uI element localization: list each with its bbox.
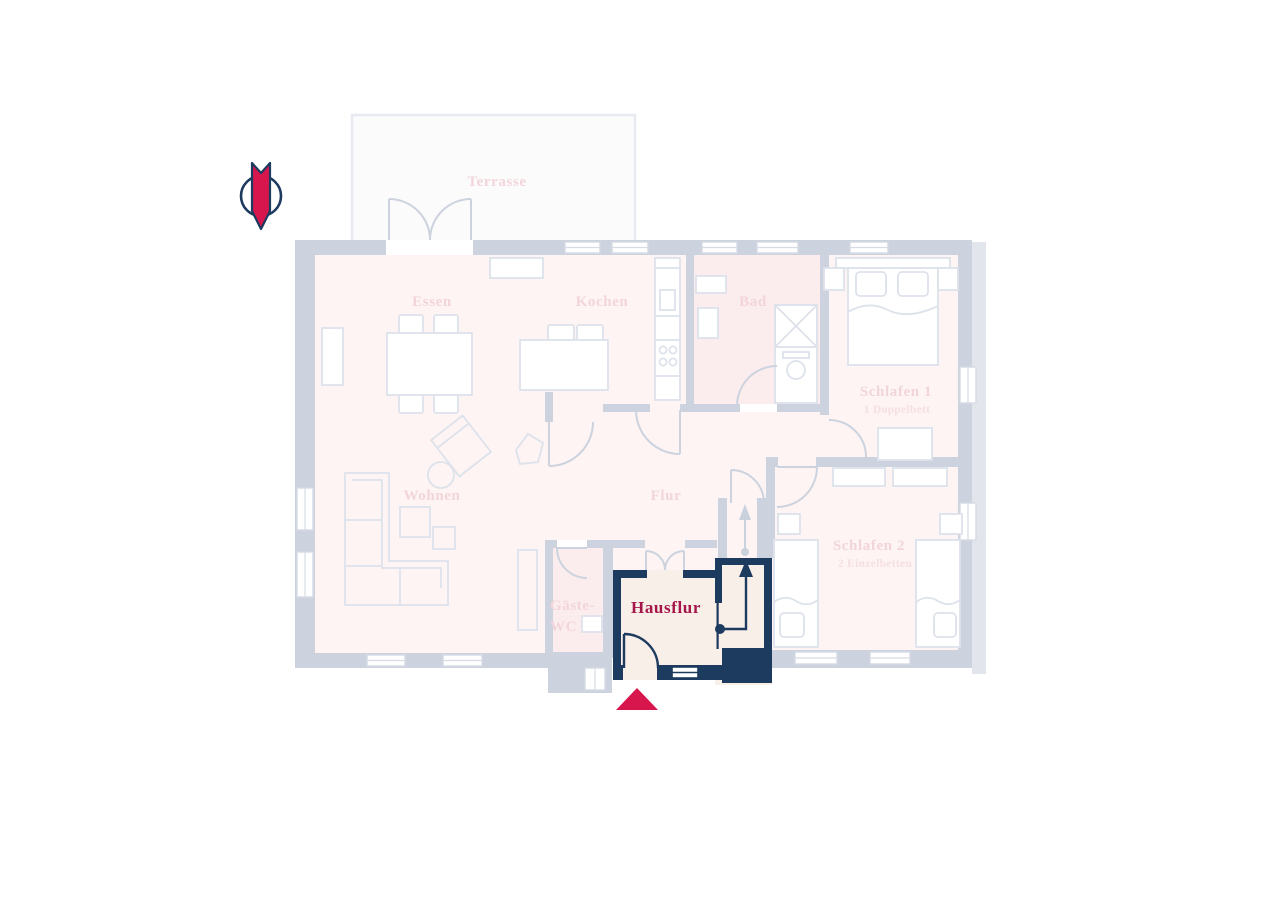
floorplan-svg: Hausflur Terrasse Essen Kochen Bad Schla… xyxy=(0,0,1280,905)
nightstand-left xyxy=(824,268,844,290)
essen-cabinet xyxy=(322,328,343,385)
hausflur-floor-main xyxy=(613,570,722,680)
nightstand-s2-right xyxy=(940,514,962,534)
window-top-1 xyxy=(565,242,600,253)
room-label-bad: Bad xyxy=(739,294,767,310)
room-label-wohnen: Wohnen xyxy=(404,488,461,504)
wall-left xyxy=(295,240,315,668)
kitchen-sink xyxy=(660,290,675,310)
wall-wohnen-flur xyxy=(545,392,553,422)
gwc-door-opening xyxy=(557,540,587,548)
floorplan-canvas: Hausflur Terrasse Essen Kochen Bad Schla… xyxy=(0,0,1280,905)
hausflur-window xyxy=(672,667,698,678)
exterior-band xyxy=(972,242,986,674)
terrace-door-opening xyxy=(386,240,473,255)
wall-vestibule-left xyxy=(718,498,727,558)
wall-gwc-right xyxy=(603,548,613,658)
essen-sideboard xyxy=(490,258,543,278)
bad-door-opening xyxy=(740,404,777,412)
window-bottom-4 xyxy=(870,652,910,664)
room-label-schlafen2: Schlafen 2 xyxy=(833,538,905,554)
hausflur-room[interactable]: Hausflur xyxy=(613,558,772,685)
nightstand-s2-left xyxy=(778,514,800,534)
window-right-1 xyxy=(960,367,976,403)
bad-cabinet xyxy=(698,308,718,338)
kitchen-counter xyxy=(655,258,680,400)
bad-sink xyxy=(696,276,726,293)
wall-flur-bottom-b xyxy=(685,540,717,548)
room-label-kochen: Kochen xyxy=(576,294,629,310)
room-label-gaeste-wc-1: Gäste- xyxy=(550,598,595,614)
north-arrow-icon xyxy=(241,163,281,229)
wall-bad-bottom xyxy=(694,404,740,412)
room-label-schlafen1: Schlafen 1 xyxy=(860,384,932,400)
wardrobe-2 xyxy=(893,468,947,486)
window-bulge xyxy=(585,668,605,690)
entrance-triangle-icon xyxy=(616,688,658,710)
wardrobe-1 xyxy=(833,468,885,486)
window-top-3 xyxy=(702,242,737,253)
wall-kochen-bottom xyxy=(603,404,650,412)
window-top-2 xyxy=(612,242,648,253)
gwc-sink xyxy=(582,616,602,632)
wall-bottom-left xyxy=(295,653,553,668)
room-label-terrasse: Terrasse xyxy=(467,174,526,190)
wall-kochen-jamb xyxy=(680,404,694,412)
window-top-4 xyxy=(757,242,798,253)
room-label-gaeste-wc-2: WC xyxy=(550,619,577,635)
window-left-1 xyxy=(297,488,313,530)
window-left-2 xyxy=(297,552,313,597)
window-bottom-1 xyxy=(367,655,405,666)
window-top-5 xyxy=(850,242,888,253)
dresser xyxy=(878,428,932,460)
wall-bad-bottom-b xyxy=(775,404,820,412)
room-label-essen: Essen xyxy=(412,294,452,310)
window-bottom-2 xyxy=(443,655,482,666)
wall-flur-bottom-a xyxy=(613,540,645,548)
window-bottom-3 xyxy=(795,652,837,664)
wall-kochen-bad xyxy=(686,255,694,412)
wall-vestibule-right xyxy=(757,498,766,558)
bad-column xyxy=(775,305,817,403)
room-sublabel-schlafen1: 1 Doppelbett xyxy=(864,404,931,416)
hausflur-label: Hausflur xyxy=(631,598,701,617)
room-sublabel-schlafen2: 2 Einzelbetten xyxy=(838,558,912,570)
nightstand-right xyxy=(938,268,958,290)
room-label-flur: Flur xyxy=(651,488,682,504)
